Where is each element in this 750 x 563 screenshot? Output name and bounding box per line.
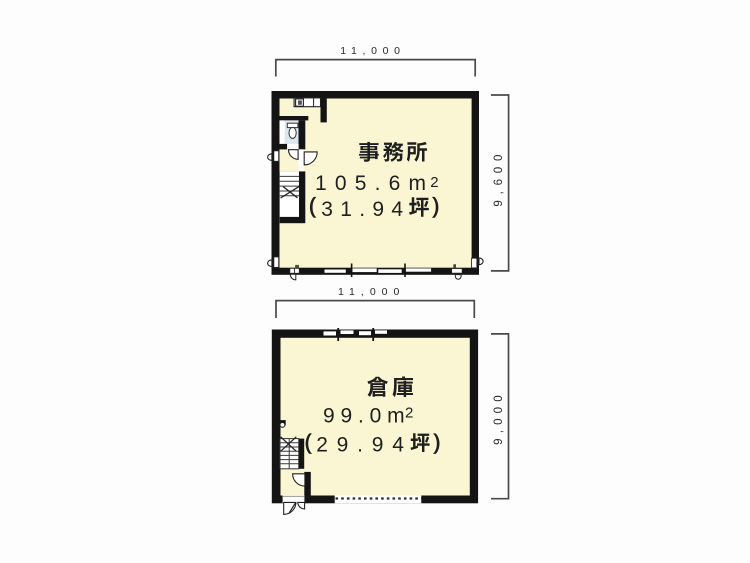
svg-text:11,000: 11,000 [340,45,406,57]
svg-text:9,000: 9,000 [493,390,505,445]
svg-text:31.94: 31.94 [321,198,410,221]
svg-text:9,600: 9,600 [493,149,505,207]
svg-text:11,000: 11,000 [338,286,405,298]
svg-text:29.94: 29.94 [316,434,413,457]
svg-text:2: 2 [430,174,438,191]
svg-text:2: 2 [405,404,413,421]
svg-text:105.6m: 105.6m [315,172,434,195]
svg-text:99.0m: 99.0m [323,404,410,427]
